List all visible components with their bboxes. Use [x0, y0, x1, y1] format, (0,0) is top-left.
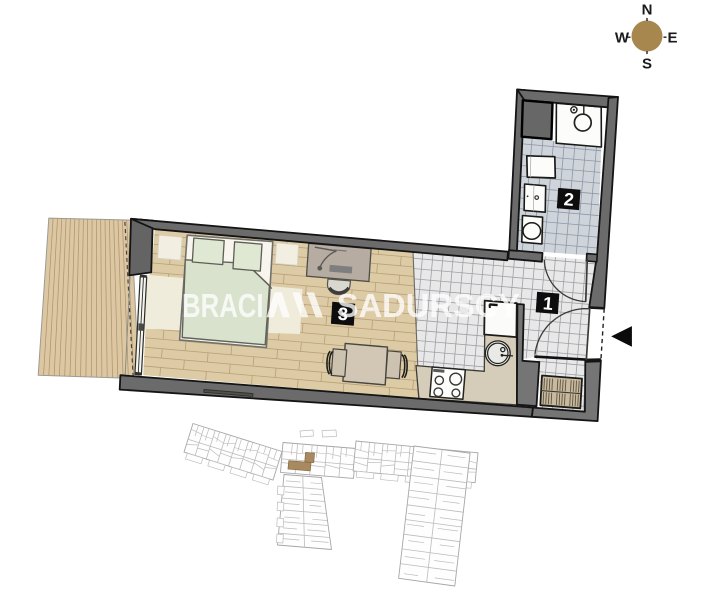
svg-text:S: S	[642, 56, 652, 73]
svg-text:2: 2	[563, 189, 575, 210]
svg-text:E: E	[667, 30, 677, 47]
svg-text:1: 1	[542, 293, 554, 314]
svg-text:W: W	[615, 30, 630, 47]
svg-text:BRACI: BRACI	[182, 288, 264, 325]
svg-text:SADURSCY: SADURSCY	[337, 287, 520, 324]
svg-text:N: N	[642, 2, 653, 19]
